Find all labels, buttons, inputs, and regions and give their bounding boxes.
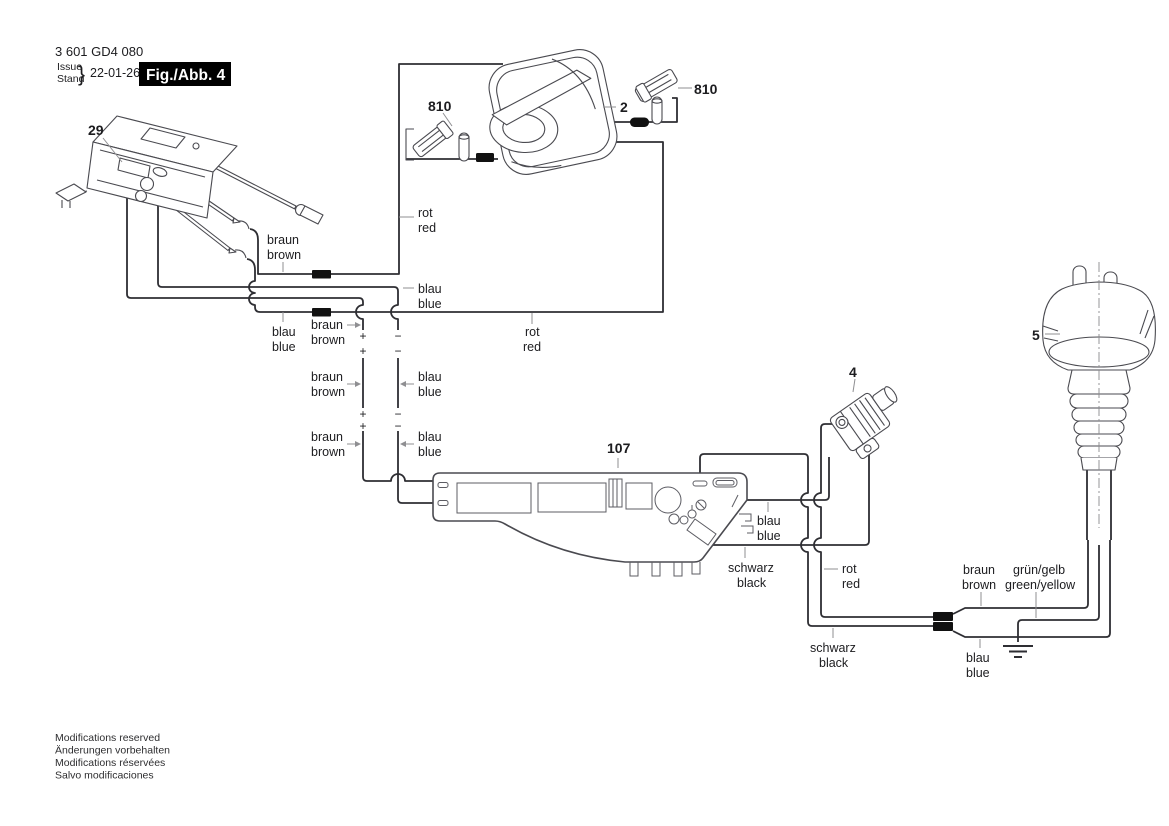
leader-braun-mid-arrow bbox=[355, 322, 361, 328]
footer-line-2: Änderungen vorbehalten bbox=[55, 745, 170, 757]
wire-label-braun-brown-switch: braun brown bbox=[267, 233, 301, 262]
ground-symbol bbox=[1003, 646, 1033, 657]
wire-label-schwarz-black-board: schwarz black bbox=[728, 561, 774, 590]
black-text: black bbox=[819, 656, 849, 670]
red-text: red bbox=[523, 340, 541, 354]
connector-block-rot-braun bbox=[933, 612, 953, 621]
wire-label-blau-blue-plug: blau blue bbox=[966, 651, 990, 680]
board-tab-1 bbox=[739, 514, 751, 521]
leader-blau-seg1-arrow bbox=[400, 381, 406, 387]
wire-blau-board-to-connector bbox=[745, 457, 829, 500]
connector-block-schwarz-blau bbox=[933, 622, 953, 631]
brown-text: brown bbox=[311, 333, 345, 347]
plus-mark-1: + bbox=[359, 329, 366, 343]
wire-label-blau-blue-seg1: blau blue bbox=[418, 370, 442, 399]
connector-block-brush-right bbox=[630, 118, 649, 128]
blue-text: blue bbox=[418, 385, 442, 399]
connector-4 bbox=[829, 380, 915, 462]
schwarz-text: schwarz bbox=[810, 641, 856, 655]
blau-text: blau bbox=[272, 325, 296, 339]
footer-line-1: Modifications reserved bbox=[55, 732, 160, 744]
rot-text: rot bbox=[842, 562, 857, 576]
wire-label-braun-brown-plug: braun brown bbox=[962, 563, 996, 592]
blau-text: blau bbox=[757, 514, 781, 528]
gruen-gelb-text: grün/gelb bbox=[1013, 563, 1065, 577]
plus-mark-4: + bbox=[359, 419, 366, 433]
braun-text: braun bbox=[311, 430, 343, 444]
leader-braun-seg1-arrow bbox=[355, 381, 361, 387]
wire-label-blau-blue-junction: blau blue bbox=[418, 282, 442, 311]
part-label-810-right: 810 bbox=[694, 81, 718, 97]
wiring-diagram-page: 3 601 GD4 080 Issue Stand } 22-01-26 Fig… bbox=[0, 0, 1169, 826]
wire-label-rot-red-long: rot red bbox=[523, 325, 541, 354]
electronics-module-107 bbox=[433, 473, 753, 576]
blau-text: blau bbox=[966, 651, 990, 665]
rot-text: rot bbox=[525, 325, 540, 339]
carbon-brush-left bbox=[406, 120, 469, 161]
brown-text: brown bbox=[962, 578, 996, 592]
board-tab-2 bbox=[741, 526, 753, 533]
wire-label-braun-brown-seg1: braun brown bbox=[311, 370, 345, 399]
wiring-diagram: 3 601 GD4 080 Issue Stand } 22-01-26 Fig… bbox=[0, 0, 1169, 826]
rot-text: rot bbox=[418, 206, 433, 220]
wire-label-braun-brown-seg2: braun brown bbox=[311, 430, 345, 459]
brown-text: brown bbox=[311, 445, 345, 459]
part-label-107: 107 bbox=[607, 440, 631, 456]
leader-part-4 bbox=[853, 379, 855, 392]
part-label-810-left: 810 bbox=[428, 98, 452, 114]
red-text: red bbox=[418, 221, 436, 235]
braun-text: braun bbox=[311, 370, 343, 384]
switch-wire-hook-2 bbox=[235, 250, 246, 258]
mains-plug-5 bbox=[1043, 262, 1156, 528]
polarity-marks: + − + − + − + − bbox=[359, 329, 401, 433]
blau-text: blau bbox=[418, 370, 442, 384]
board-pins bbox=[630, 562, 700, 576]
minus-mark-2: − bbox=[394, 344, 401, 358]
carbon-brush-right bbox=[634, 67, 679, 124]
part-label-5: 5 bbox=[1032, 327, 1040, 343]
plus-mark-2: + bbox=[359, 344, 366, 358]
switch-roller-2 bbox=[136, 191, 147, 202]
figure-label: Fig./Abb. 4 bbox=[146, 67, 226, 84]
wire-braun-plug bbox=[953, 540, 1088, 614]
issue-date: 22-01-26 bbox=[90, 66, 140, 80]
schwarz-text: schwarz bbox=[728, 561, 774, 575]
footer-line-3: Modifications réservées bbox=[55, 757, 165, 769]
brown-text: brown bbox=[311, 385, 345, 399]
wire-label-blau-blue-board: blau blue bbox=[757, 514, 781, 543]
wire-label-blau-blue-long-left: blau blue bbox=[272, 325, 296, 354]
connector-block-brush-left bbox=[476, 153, 494, 162]
wire-label-rot-red-stator-top: rot red bbox=[418, 206, 436, 235]
blue-text: blue bbox=[966, 666, 990, 680]
black-text: black bbox=[737, 576, 767, 590]
leader-braun-seg2-arrow bbox=[355, 441, 361, 447]
red-text: red bbox=[842, 577, 860, 591]
footer-line-4: Salvo modificaciones bbox=[55, 770, 154, 782]
switch-blade-terminal-cap bbox=[300, 206, 323, 224]
wire-label-rot-red-right: rot red bbox=[842, 562, 860, 591]
leaders bbox=[103, 88, 1060, 648]
part-number-code: 3 601 GD4 080 bbox=[55, 44, 143, 59]
wire-label-blau-blue-seg2: blau blue bbox=[418, 430, 442, 459]
blue-text: blue bbox=[272, 340, 296, 354]
switch-lever-flag bbox=[56, 184, 86, 201]
connector-block-blau-rot bbox=[312, 308, 331, 317]
wire-label-green-yellow-plug: grün/gelb green/yellow bbox=[1005, 563, 1076, 592]
braun-text: braun bbox=[267, 233, 299, 247]
brush-left-spring bbox=[459, 133, 469, 161]
minus-mark-4: − bbox=[394, 419, 401, 433]
braun-text: braun bbox=[963, 563, 995, 577]
footer-notice: Modifications reserved Änderungen vorbeh… bbox=[55, 732, 170, 782]
part-label-4: 4 bbox=[849, 364, 857, 380]
connector-block-braun-rot bbox=[312, 270, 331, 279]
brush-left-bracket bbox=[406, 129, 414, 160]
wire-green-yellow-plug bbox=[1018, 545, 1099, 642]
blau-text: blau bbox=[418, 282, 442, 296]
switch-blade-3-tip bbox=[229, 248, 236, 253]
wire-label-schwarz-black-bottom: schwarz black bbox=[810, 641, 856, 670]
wire-label-braun-brown-mid: braun brown bbox=[311, 318, 345, 347]
leader-blau-seg2-arrow bbox=[400, 441, 406, 447]
brown-text: brown bbox=[267, 248, 301, 262]
field-stator-2 bbox=[472, 45, 622, 181]
green-yellow-text: green/yellow bbox=[1005, 578, 1076, 592]
brush-right-spring bbox=[652, 97, 662, 124]
issue-stand-brace: } bbox=[78, 63, 85, 86]
blue-text: blue bbox=[418, 297, 442, 311]
part-label-2: 2 bbox=[620, 99, 628, 115]
blue-text: blue bbox=[757, 529, 781, 543]
part-label-29: 29 bbox=[88, 122, 104, 138]
switch-roller-1 bbox=[141, 178, 154, 191]
minus-mark-1: − bbox=[394, 329, 401, 343]
blau-text: blau bbox=[418, 430, 442, 444]
braun-text: braun bbox=[311, 318, 343, 332]
wire-rot-connector-to-block bbox=[814, 424, 937, 617]
blue-text: blue bbox=[418, 445, 442, 459]
